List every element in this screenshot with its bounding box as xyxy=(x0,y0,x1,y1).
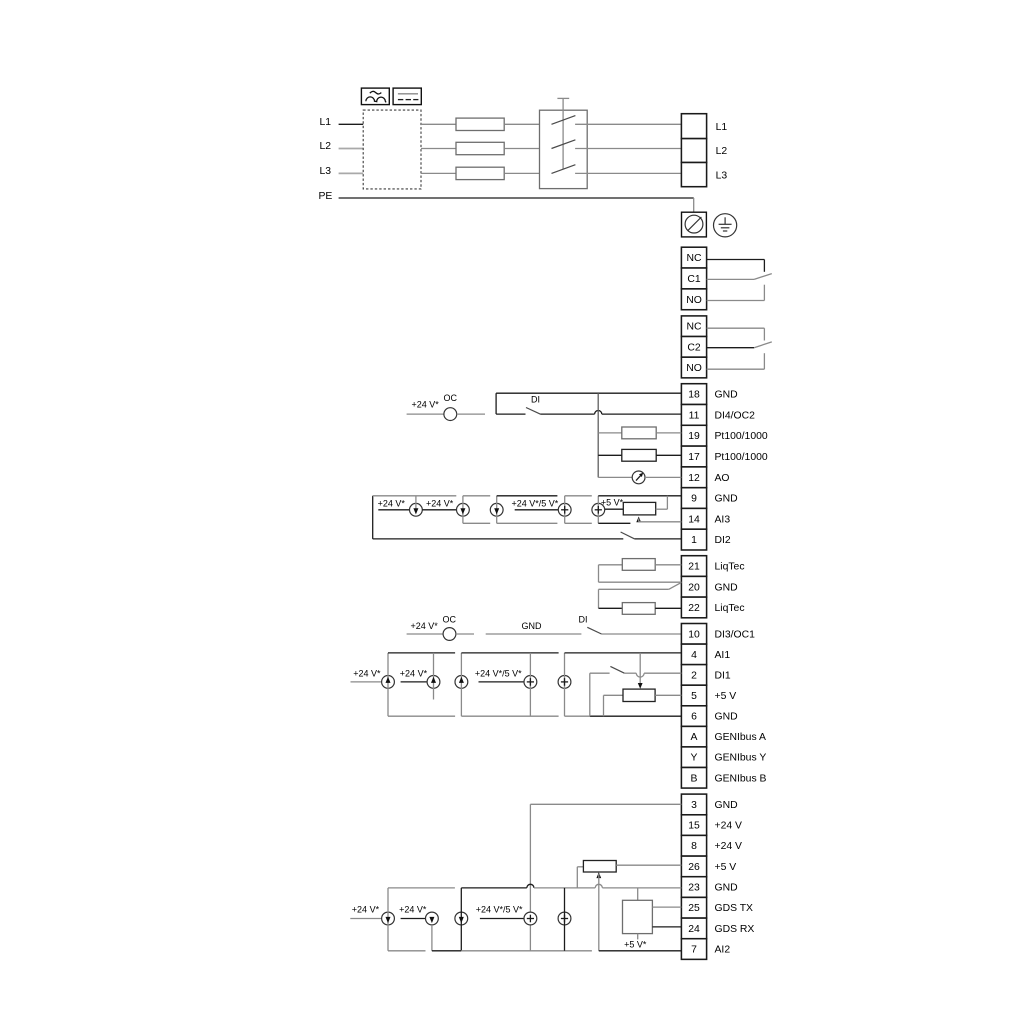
svg-text:26: 26 xyxy=(688,862,700,873)
svg-text:Pt100/1000: Pt100/1000 xyxy=(715,431,768,442)
svg-text:GND: GND xyxy=(715,390,738,401)
svg-text:GENIbus Y: GENIbus Y xyxy=(715,753,767,764)
svg-text:+5 V: +5 V xyxy=(715,862,737,873)
svg-text:14: 14 xyxy=(688,514,700,525)
svg-text:GND: GND xyxy=(715,582,738,593)
svg-text:GENIbus B: GENIbus B xyxy=(715,773,767,784)
svg-text:+24 V*: +24 V* xyxy=(353,668,381,678)
svg-text:+24 V: +24 V xyxy=(715,821,743,832)
svg-text:GND: GND xyxy=(715,800,738,811)
svg-text:17: 17 xyxy=(688,452,700,463)
svg-text:1: 1 xyxy=(691,535,697,546)
svg-text:OC: OC xyxy=(444,393,458,403)
svg-text:AI2: AI2 xyxy=(715,945,731,956)
svg-text:L3: L3 xyxy=(716,171,728,182)
svg-text:A: A xyxy=(691,732,698,743)
svg-text:GND: GND xyxy=(715,494,738,505)
svg-text:9: 9 xyxy=(691,494,697,505)
svg-text:GND: GND xyxy=(715,712,738,723)
svg-text:NO: NO xyxy=(686,363,702,374)
svg-text:8: 8 xyxy=(691,841,697,852)
svg-text:GND: GND xyxy=(522,621,543,631)
svg-text:2: 2 xyxy=(691,670,697,681)
svg-text:NC: NC xyxy=(686,322,702,333)
svg-text:21: 21 xyxy=(688,562,700,573)
svg-text:+24 V*: +24 V* xyxy=(411,621,439,631)
svg-text:AI3: AI3 xyxy=(715,514,731,525)
svg-text:LiqTec: LiqTec xyxy=(715,562,745,573)
svg-text:NO: NO xyxy=(686,295,702,306)
svg-text:+24 V*: +24 V* xyxy=(399,905,427,915)
svg-text:NC: NC xyxy=(686,253,702,264)
svg-text:23: 23 xyxy=(688,883,700,894)
svg-text:25: 25 xyxy=(688,903,700,914)
svg-text:+24 V*/5 V*: +24 V*/5 V* xyxy=(512,498,559,508)
svg-text:L3: L3 xyxy=(320,166,332,177)
svg-text:C1: C1 xyxy=(687,274,701,285)
svg-text:18: 18 xyxy=(688,390,700,401)
svg-text:GDS TX: GDS TX xyxy=(715,903,754,914)
svg-text:+24 V*: +24 V* xyxy=(426,498,454,508)
svg-text:11: 11 xyxy=(689,410,700,421)
svg-text:GENIbus A: GENIbus A xyxy=(715,732,766,743)
svg-text:LiqTec: LiqTec xyxy=(715,603,745,614)
svg-text:+24 V: +24 V xyxy=(715,841,743,852)
svg-text:12: 12 xyxy=(688,473,700,484)
svg-text:4: 4 xyxy=(691,650,697,661)
svg-text:7: 7 xyxy=(691,945,697,956)
svg-text:DI3/OC1: DI3/OC1 xyxy=(715,629,756,640)
svg-text:PE: PE xyxy=(319,191,333,202)
svg-text:22: 22 xyxy=(688,603,700,614)
svg-text:DI4/OC2: DI4/OC2 xyxy=(715,410,756,421)
svg-text:+24 V*: +24 V* xyxy=(400,668,428,678)
svg-text:Pt100/1000: Pt100/1000 xyxy=(715,452,768,463)
svg-text:+5 V*: +5 V* xyxy=(601,498,624,508)
svg-text:10: 10 xyxy=(688,629,700,640)
svg-text:AI1: AI1 xyxy=(715,650,731,661)
svg-text:19: 19 xyxy=(688,431,700,442)
svg-text:+24 V*: +24 V* xyxy=(352,905,380,915)
svg-text:DI: DI xyxy=(579,615,588,625)
svg-text:L1: L1 xyxy=(716,122,728,133)
svg-text:+5 V*: +5 V* xyxy=(624,939,647,949)
svg-text:DI: DI xyxy=(531,394,540,404)
svg-text:GDS RX: GDS RX xyxy=(715,924,755,935)
svg-text:C2: C2 xyxy=(687,342,701,353)
svg-text:OC: OC xyxy=(443,615,457,625)
svg-text:3: 3 xyxy=(691,800,697,811)
svg-text:+24 V*/5 V*: +24 V*/5 V* xyxy=(476,905,523,915)
svg-text:+24 V*: +24 V* xyxy=(378,498,406,508)
svg-text:DI1: DI1 xyxy=(715,670,731,681)
svg-text:AO: AO xyxy=(715,473,730,484)
svg-text:5: 5 xyxy=(691,691,697,702)
svg-text:15: 15 xyxy=(688,821,700,832)
svg-text:GND: GND xyxy=(715,883,738,894)
svg-text:+24 V*/5 V*: +24 V*/5 V* xyxy=(475,668,522,678)
svg-text:+5 V: +5 V xyxy=(715,691,737,702)
svg-text:L2: L2 xyxy=(716,146,728,157)
svg-text:L2: L2 xyxy=(320,141,332,152)
svg-text:24: 24 xyxy=(688,924,700,935)
svg-text:DI2: DI2 xyxy=(715,535,731,546)
svg-text:Y: Y xyxy=(691,753,698,764)
svg-text:20: 20 xyxy=(688,582,700,593)
svg-text:6: 6 xyxy=(691,712,697,723)
svg-text:+24 V*: +24 V* xyxy=(412,399,440,409)
svg-text:B: B xyxy=(691,773,698,784)
svg-text:L1: L1 xyxy=(320,117,332,128)
